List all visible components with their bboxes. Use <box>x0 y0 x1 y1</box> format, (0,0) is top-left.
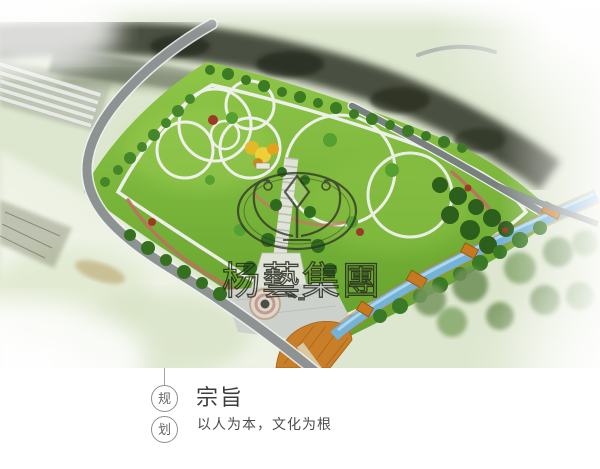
caption-subtitle: 以人为本，文化为根 <box>197 414 332 434</box>
park-scene: 杨藝集團 <box>0 0 600 368</box>
timeline-connector-line <box>164 368 165 385</box>
park-masterplan-image[interactable]: 杨藝集團 <box>0 0 600 368</box>
badge-circle-hua: 划 <box>151 416 178 443</box>
watermark-text: 杨藝集團 <box>222 259 382 303</box>
caption-title: 宗旨 <box>196 380 244 412</box>
watermark-logo <box>238 173 356 249</box>
badge-circle-gui: 规 <box>151 385 178 412</box>
caption-block: 规 划 宗旨 以人为本，文化为根 <box>0 368 600 469</box>
article-section: 杨藝集團 规 划 宗旨 以人为本，文化为根 <box>0 0 600 469</box>
